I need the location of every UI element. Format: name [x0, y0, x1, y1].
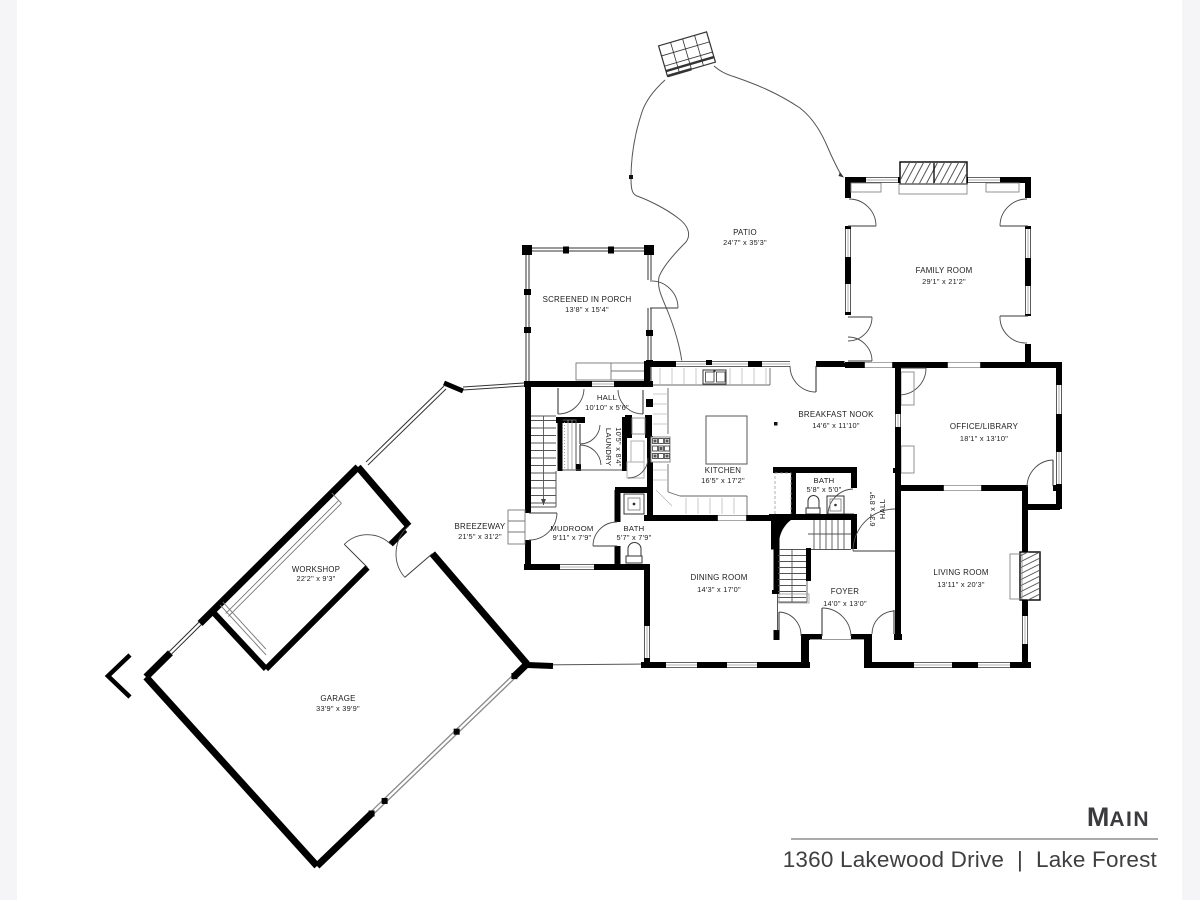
svg-text:13'11" x 20'3": 13'11" x 20'3": [937, 580, 985, 589]
svg-text:OFFICE/LIBRARY: OFFICE/LIBRARY: [950, 422, 1019, 431]
svg-text:14'3" x 17'0": 14'3" x 17'0": [697, 585, 741, 594]
svg-text:PATIO: PATIO: [733, 228, 757, 237]
svg-text:BREEZEWAY: BREEZEWAY: [455, 522, 506, 531]
svg-text:22'2" x 9'3": 22'2" x 9'3": [297, 574, 336, 583]
svg-text:6'3" x 8'9": 6'3" x 8'9": [868, 491, 877, 526]
svg-text:DINING ROOM: DINING ROOM: [690, 573, 747, 582]
svg-text:BATH: BATH: [814, 476, 835, 485]
svg-text:BATH: BATH: [624, 524, 645, 533]
svg-text:WORKSHOP: WORKSHOP: [292, 565, 340, 574]
svg-text:9'11" x 7'9": 9'11" x 7'9": [553, 533, 592, 542]
svg-text:10'5" x 8'4": 10'5" x 8'4": [614, 427, 623, 467]
svg-text:16'5" x 17'2": 16'5" x 17'2": [701, 476, 745, 485]
svg-text:33'9" x 39'9": 33'9" x 39'9": [316, 704, 360, 713]
svg-text:FOYER: FOYER: [831, 587, 859, 596]
svg-text:5'8" x 5'0": 5'8" x 5'0": [806, 485, 841, 494]
svg-text:1360 Lakewood Drive | Lake F: 1360 Lakewood Drive | Lake Forest: [783, 847, 1158, 872]
svg-text:HALL: HALL: [878, 498, 887, 519]
svg-text:HALL: HALL: [597, 393, 618, 402]
svg-text:29'1" x 21'2": 29'1" x 21'2": [922, 277, 966, 286]
svg-text:13'8" x 15'4": 13'8" x 15'4": [565, 305, 609, 314]
svg-text:SCREENED IN PORCH: SCREENED IN PORCH: [543, 295, 632, 304]
svg-text:BREAKFAST NOOK: BREAKFAST NOOK: [798, 410, 874, 419]
svg-text:14'0" x 13'0": 14'0" x 13'0": [823, 599, 867, 608]
svg-text:5'7" x 7'9": 5'7" x 7'9": [616, 533, 651, 542]
svg-text:FAMILY ROOM: FAMILY ROOM: [916, 266, 973, 275]
svg-text:18'1" x 13'10": 18'1" x 13'10": [960, 434, 1008, 443]
svg-text:21'5" x 31'2": 21'5" x 31'2": [458, 532, 502, 541]
svg-text:KITCHEN: KITCHEN: [705, 466, 741, 475]
svg-text:10'10" x 5'6": 10'10" x 5'6": [585, 403, 629, 412]
svg-text:GARAGE: GARAGE: [320, 694, 355, 703]
svg-text:14'6" x 11'10": 14'6" x 11'10": [812, 421, 860, 430]
svg-text:MUDROOM: MUDROOM: [550, 524, 593, 533]
svg-text:LIVING ROOM: LIVING ROOM: [933, 568, 988, 577]
svg-text:24'7" x 35'3": 24'7" x 35'3": [723, 238, 767, 247]
svg-text:LAUNDRY: LAUNDRY: [604, 428, 613, 466]
